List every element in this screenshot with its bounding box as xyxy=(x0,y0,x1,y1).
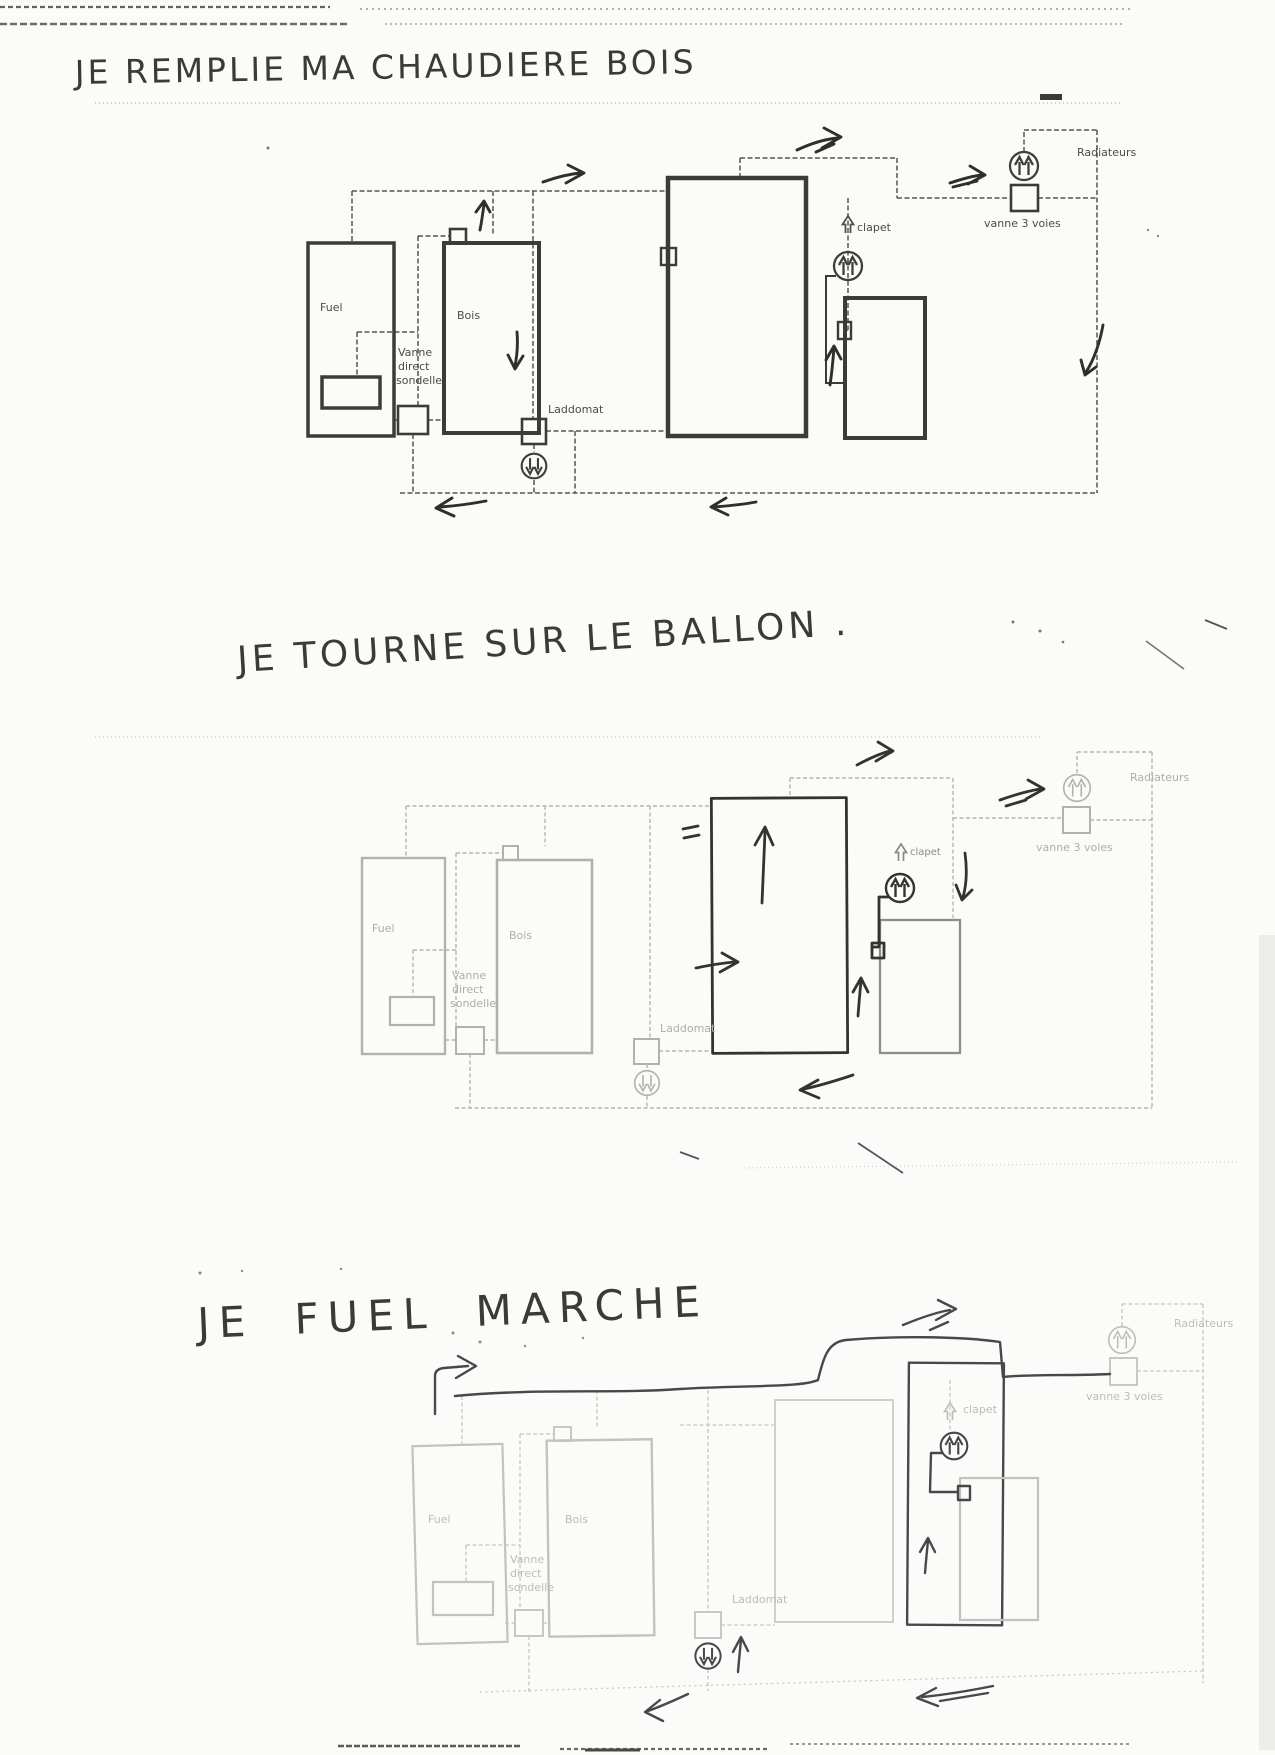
handwritten-title: JE FUEL MARCHE xyxy=(193,1277,710,1348)
flow-arrow-right xyxy=(903,1300,956,1330)
bois-label: Bois xyxy=(509,929,532,942)
three-way-valve-square xyxy=(1110,1358,1137,1385)
hot-water-tank-box xyxy=(845,298,925,438)
scan-shadow-right xyxy=(1259,935,1275,1750)
laddomat-label: Laddomat xyxy=(732,1593,788,1606)
direct-valve-label: sondelle xyxy=(508,1581,554,1594)
hot-water-tank-box xyxy=(960,1478,1038,1620)
flow-arrow-left xyxy=(800,1075,853,1098)
bois-label: Bois xyxy=(457,309,480,322)
direct-valve-label: Vanne xyxy=(398,346,432,359)
handwritten-title: JE REMPLIE MA CHAUDIERE BOIS xyxy=(72,42,696,92)
pump-bypass-line xyxy=(872,897,888,947)
flow-arrow-up xyxy=(853,978,868,1016)
laddomat-label: Laddomat xyxy=(660,1022,716,1035)
radiator-pump-icon xyxy=(1109,1327,1136,1354)
buffer-tank-box-pen-traced xyxy=(711,798,847,1054)
flow-arrow-curved-right xyxy=(435,1356,476,1414)
pipe-lines xyxy=(462,1304,1203,1693)
diagram-turn-on-buffer-tank: JE TOURNE SUR LE BALLON . Fuel Bois Vann… xyxy=(234,603,1189,1108)
direct-valve-label: direct xyxy=(398,360,430,373)
buffer-tank-box-faint xyxy=(775,1400,893,1622)
bois-label: Bois xyxy=(565,1513,588,1526)
scan-artifacts xyxy=(0,7,1275,1750)
direct-valve-square xyxy=(515,1610,543,1636)
fuel-label: Fuel xyxy=(428,1513,451,1526)
check-valve-icon xyxy=(896,844,907,861)
direct-valve-square xyxy=(398,406,428,434)
laddomat-pump-icon-pen-traced xyxy=(695,1643,720,1668)
flow-arrow-left xyxy=(645,1694,688,1721)
flow-arrow-up xyxy=(476,201,490,230)
laddomat-valve-square xyxy=(634,1039,659,1064)
supply-pipe-pen-traced xyxy=(455,1337,1110,1396)
fuel-label: Fuel xyxy=(372,922,395,935)
three-way-valve-square xyxy=(1063,807,1090,833)
flow-arrow-up xyxy=(733,1637,748,1672)
pen-streak xyxy=(680,1152,699,1159)
ink-speck xyxy=(1012,621,1015,624)
direct-valve-label: sondelle xyxy=(396,374,442,387)
heating-schematic-scan: JE REMPLIE MA CHAUDIERE BOIS Fuel Bois V… xyxy=(0,0,1275,1755)
direct-valve-square xyxy=(456,1027,484,1054)
clapet-label: clapet xyxy=(963,1403,998,1416)
burner-box xyxy=(322,377,380,408)
ink-speck xyxy=(267,147,270,150)
pen-tick-marks xyxy=(683,826,699,838)
flow-arrow-right xyxy=(950,166,985,187)
laddomat-valve-square xyxy=(695,1612,721,1638)
flow-arrow-down xyxy=(508,332,523,369)
pump-bypass-line xyxy=(826,276,845,383)
laddomat-pump-icon xyxy=(522,454,547,479)
radiator-pump-icon xyxy=(1010,152,1038,180)
ink-speck xyxy=(199,1272,202,1275)
clapet-label: clapet xyxy=(910,847,941,858)
flow-arrow-down xyxy=(1081,325,1103,375)
flue-connector-square xyxy=(450,229,466,243)
flow-arrow-up xyxy=(755,827,773,903)
three-way-valve-label: vanne 3 voies xyxy=(1036,841,1113,854)
flue-connector-square xyxy=(554,1427,571,1441)
flow-arrow-down xyxy=(956,853,972,900)
radiateurs-label: Radiateurs xyxy=(1077,146,1136,159)
flow-arrow-left xyxy=(711,498,756,515)
flue-connector-square xyxy=(503,846,518,860)
burner-box xyxy=(390,997,434,1025)
pen-streak xyxy=(1205,620,1227,629)
wood-boiler-box xyxy=(497,860,592,1053)
flow-arrow-right xyxy=(543,165,584,183)
pen-streak xyxy=(858,1143,903,1173)
wood-boiler-box xyxy=(547,1439,655,1636)
ink-speck xyxy=(1062,641,1065,644)
direct-valve-label: Vanne xyxy=(452,969,486,982)
pen-streak xyxy=(1146,641,1184,669)
return-pipe-line xyxy=(480,1671,1203,1692)
scanned-document-page: JE REMPLIE MA CHAUDIERE BOIS Fuel Bois V… xyxy=(0,0,1275,1755)
ink-speck xyxy=(1147,229,1149,231)
burner-box xyxy=(433,1582,493,1615)
radiateurs-label: Radiateurs xyxy=(1174,1317,1233,1330)
flow-arrow-left xyxy=(917,1686,993,1706)
wood-boiler-box xyxy=(444,243,539,433)
direct-valve-label: sondelle xyxy=(450,997,496,1010)
diagram-oil-boiler-running: JE FUEL MARCHE Fuel Bois Vanne direct so… xyxy=(193,1277,1233,1721)
tank-pump-icon-pen-traced xyxy=(886,874,914,902)
flow-arrow-up xyxy=(826,346,841,385)
check-valve-icon xyxy=(945,1403,956,1420)
flow-arrow-right xyxy=(1000,780,1044,806)
ink-speck xyxy=(340,1268,342,1270)
ink-speck xyxy=(479,1341,482,1344)
ink-speck xyxy=(1040,94,1062,100)
hot-water-tank-box xyxy=(880,920,960,1053)
ink-speck xyxy=(1157,235,1159,237)
tank-pump-icon-pen-traced xyxy=(941,1433,968,1460)
ink-speck xyxy=(241,1270,243,1272)
diagram-fill-wood-boiler: JE REMPLIE MA CHAUDIERE BOIS Fuel Bois V… xyxy=(72,42,1136,516)
three-way-valve-label: vanne 3 voies xyxy=(984,217,1061,230)
flow-arrow-right xyxy=(857,742,893,765)
ink-speck xyxy=(524,1345,526,1347)
flow-arrow-left xyxy=(436,498,486,516)
direct-valve-label: direct xyxy=(510,1567,542,1580)
ink-speck xyxy=(1039,630,1042,633)
flow-arrow-up xyxy=(920,1538,935,1573)
three-way-valve-label: vanne 3 voies xyxy=(1086,1390,1163,1403)
laddomat-pump-icon xyxy=(635,1071,660,1096)
radiateurs-label: Radiateurs xyxy=(1130,771,1189,784)
flow-arrow-right xyxy=(696,953,738,972)
three-way-valve-square xyxy=(1011,185,1038,211)
buffer-tank-box xyxy=(668,178,806,436)
radiator-pump-icon xyxy=(1064,775,1091,802)
photocopy-edge-line xyxy=(740,1162,1240,1168)
direct-valve-label: direct xyxy=(452,983,484,996)
ink-speck xyxy=(582,1337,584,1339)
clapet-label: clapet xyxy=(857,221,892,234)
laddomat-label: Laddomat xyxy=(548,403,604,416)
flow-arrow-right xyxy=(797,128,841,152)
fuel-label: Fuel xyxy=(320,301,343,314)
handwritten-title: JE TOURNE SUR LE BALLON . xyxy=(234,603,851,682)
direct-valve-label: Vanne xyxy=(510,1553,544,1566)
